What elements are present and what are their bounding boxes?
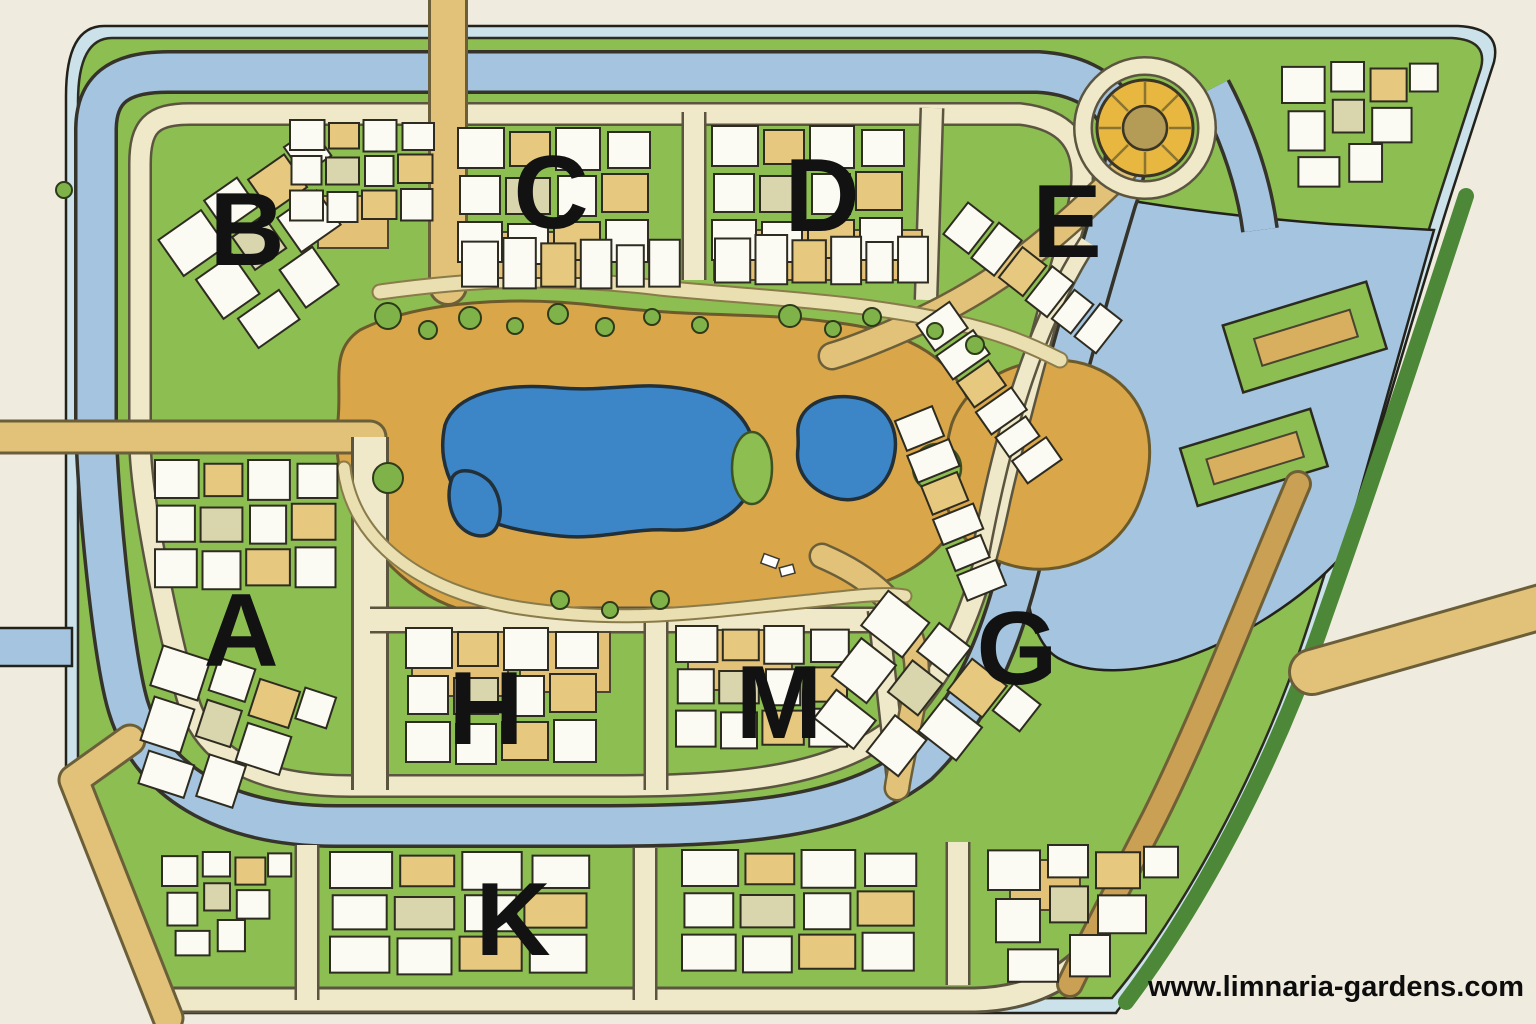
district-label-e: E [1032,164,1101,280]
map-canvas: B C D E A G H M K www.limnaria-gardens.c… [0,0,1536,1024]
district-label-d: D [784,138,859,254]
west-water-inlet [0,628,72,666]
site-plan-map: B C D E A G H M K www.limnaria-gardens.c… [0,0,1536,1024]
district-label-g: G [977,591,1058,707]
tree [56,182,72,198]
district-label-h: H [448,651,523,767]
park-islet [732,432,772,504]
district-label-c: C [513,135,588,251]
east-pond [798,397,896,500]
district-label-b: B [209,172,284,288]
district-label-m: M [736,645,823,761]
tree [373,463,403,493]
district-label-k: K [475,862,550,978]
watermark-url: www.limnaria-gardens.com [1147,971,1524,1003]
district-label-a: A [203,573,278,689]
